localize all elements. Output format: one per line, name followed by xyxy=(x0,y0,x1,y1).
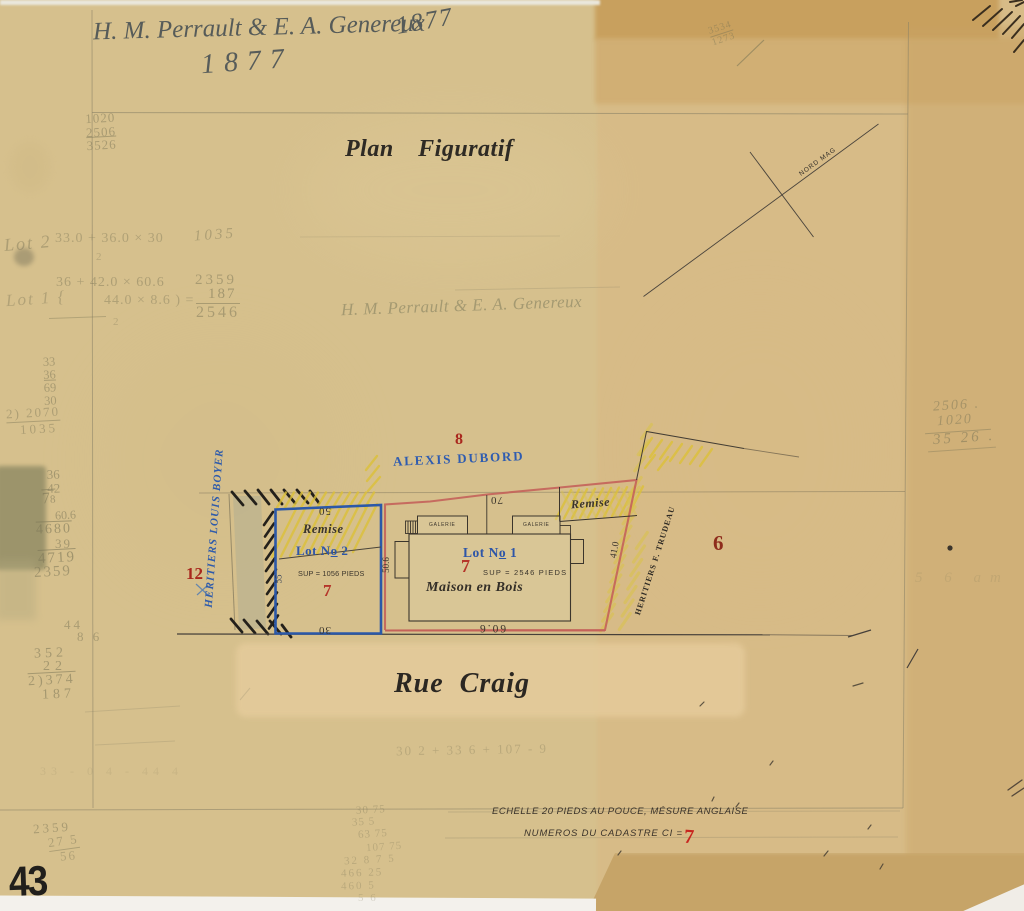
svg-text:NORD MAG: NORD MAG xyxy=(798,146,838,177)
